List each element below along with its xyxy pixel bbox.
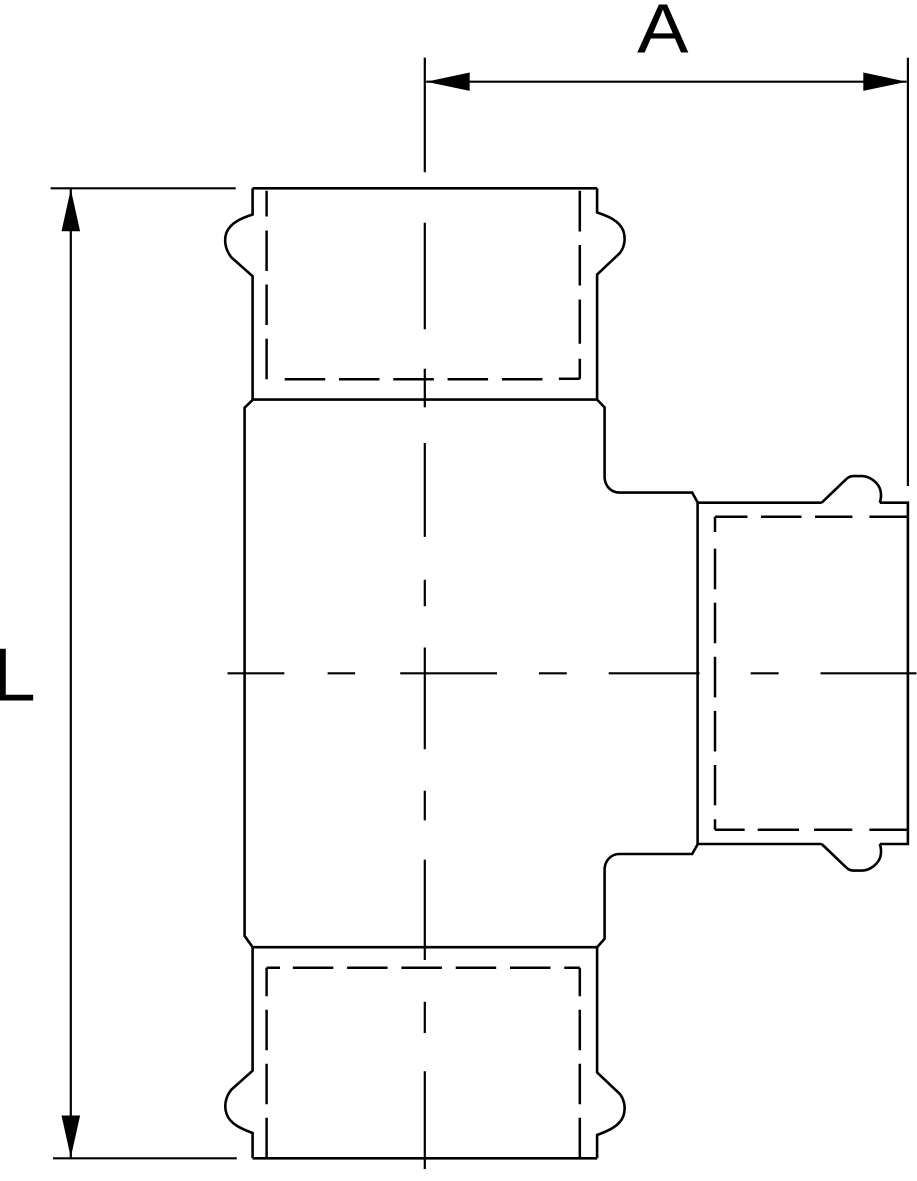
svg-text:L: L bbox=[0, 633, 36, 717]
svg-text:A: A bbox=[637, 0, 688, 68]
